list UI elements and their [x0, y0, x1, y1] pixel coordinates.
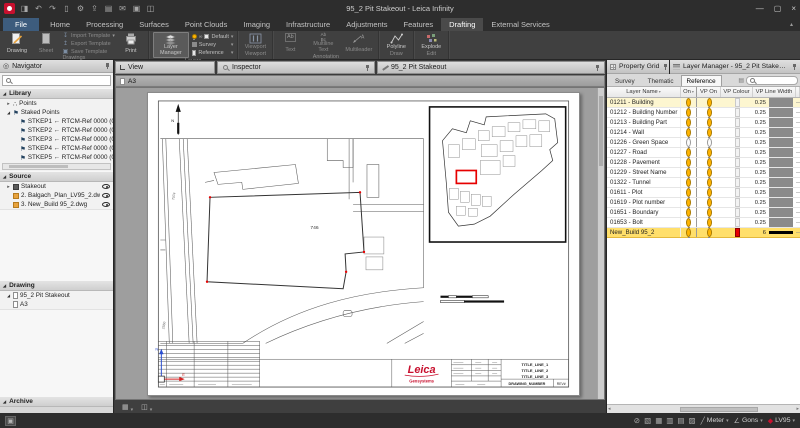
- vp-colour-swatch[interactable]: [735, 228, 740, 237]
- layer-on-cell[interactable]: [681, 128, 697, 137]
- layer-row[interactable]: 01322 - Tunnel0.25—: [607, 178, 800, 188]
- layer-vp-on-cell[interactable]: [697, 108, 721, 117]
- title-bar: ◨↶↷▯⚙⇪▤✉▣◫ 95_2 Pit Stakeout - Leica Inf…: [0, 0, 800, 17]
- layer-row[interactable]: 01651 - Boundary0.25—: [607, 208, 800, 218]
- multileader-button[interactable]: A Multileader: [343, 32, 374, 54]
- bulb-vp-on-icon[interactable]: [707, 218, 712, 227]
- section-expand-icon[interactable]: [3, 173, 6, 180]
- export-template-button[interactable]: ↥ Export Template: [62, 40, 115, 47]
- staked-point-label: STKEP5 ← RTCM-Ref 0000 (07/10: [28, 154, 113, 161]
- layer-vp-on-cell[interactable]: [697, 198, 721, 207]
- north-arrow-symbol: N: [171, 104, 181, 135]
- staked-point-label: STKEP3 ← RTCM-Ref 0000 (07/10: [28, 136, 113, 143]
- layer-vp-line-width-cell[interactable]: 0.25: [753, 98, 796, 107]
- vp-colour-swatch[interactable]: [735, 198, 740, 207]
- vp-colour-swatch[interactable]: [735, 208, 740, 217]
- scale-bar: [440, 296, 504, 303]
- cutoff-cell: —: [796, 148, 800, 157]
- ribbon-group-draw: Polyline Draw: [379, 31, 414, 59]
- redo-icon[interactable]: ↷: [46, 2, 59, 15]
- layer-vp-colour-cell[interactable]: [721, 108, 753, 117]
- layer-vp-on-cell[interactable]: [697, 138, 721, 147]
- dropdown-caret-icon[interactable]: [231, 50, 234, 56]
- visibility-eye-icon[interactable]: [102, 193, 110, 198]
- layer-vp-line-width-cell[interactable]: 0.25: [753, 198, 796, 207]
- vp-line-width-value: 0.25: [753, 118, 766, 127]
- export-template-icon: ↥: [62, 40, 69, 47]
- cutoff-cell: —: [796, 118, 800, 127]
- layer-on-cell[interactable]: [681, 218, 697, 227]
- close-button[interactable]: ×: [791, 4, 796, 13]
- navigator-title: Navigator: [12, 63, 42, 70]
- line-width-preview: [769, 158, 793, 167]
- explode-button[interactable]: Explode: [418, 32, 444, 51]
- navigator-header[interactable]: ◎ Navigator: [0, 60, 113, 73]
- layer-row[interactable]: 01227 - Road0.25—: [607, 148, 800, 158]
- minimize-button[interactable]: —: [756, 4, 764, 13]
- layer-vp-colour-cell[interactable]: [721, 98, 753, 107]
- layer-vp-colour-cell[interactable]: [721, 128, 753, 137]
- main-area: ◎ Navigator Library Points Staked Points: [0, 60, 800, 413]
- property-grid-header[interactable]: Property Grid: [607, 60, 669, 74]
- image-toggle-icon[interactable]: ▧: [644, 416, 651, 425]
- leica-app-icon[interactable]: [4, 3, 15, 14]
- visibility-eye-icon[interactable]: [102, 184, 110, 189]
- bulb-on-icon[interactable]: [686, 138, 691, 147]
- layer-vp-colour-cell[interactable]: [721, 158, 753, 167]
- canvas-vscrollbar[interactable]: [597, 88, 604, 399]
- scroll-right-arrow[interactable]: ▸: [796, 406, 799, 412]
- tab-document[interactable]: 95_2 Pit Stakeout: [377, 61, 605, 74]
- ribbon-group-edit: Explode Edit: [414, 31, 449, 59]
- expander-icon[interactable]: [6, 183, 11, 190]
- bulb-on-icon[interactable]: [686, 178, 691, 187]
- cutoff-cell: —: [796, 158, 800, 167]
- layer-manager-tabs: Survey Thematic Reference ▤: [607, 74, 800, 87]
- vp-colour-swatch[interactable]: [735, 188, 740, 197]
- vp-colour-swatch[interactable]: [735, 158, 740, 167]
- layer-vp-on-cell[interactable]: [697, 128, 721, 137]
- layer-bulb-icon: [192, 34, 197, 39]
- hatch-toggle-icon[interactable]: ▥: [666, 416, 673, 425]
- bulb-vp-on-icon[interactable]: [707, 158, 712, 167]
- layer-manager-header[interactable]: Layer Manager - 95_2 Pit Stakeout - A3: [670, 60, 800, 74]
- layer-vp-colour-cell[interactable]: [721, 198, 753, 207]
- bulb-vp-on-icon[interactable]: [707, 228, 712, 237]
- expander-icon[interactable]: [6, 292, 11, 299]
- staked-point-item[interactable]: STKEP5 ← RTCM-Ref 0000 (07/10: [0, 153, 113, 162]
- layer-vp-on-cell[interactable]: [697, 148, 721, 157]
- line-width-preview: [769, 138, 793, 147]
- section-source[interactable]: Source: [0, 171, 113, 182]
- vp-line-width-value: 0.25: [753, 198, 766, 207]
- column-vp-on[interactable]: VP On: [697, 87, 721, 97]
- ribbon-tab-point-clouds[interactable]: Point Clouds: [177, 18, 236, 32]
- vp-colour-swatch[interactable]: [735, 108, 740, 117]
- layer-row[interactable]: 01226 - Green Space0.25—: [607, 138, 800, 148]
- layer-manager-button[interactable]: Layer Manager: [153, 32, 189, 58]
- layer-vp-line-width-cell[interactable]: 0.25: [753, 168, 796, 177]
- layer-vp-colour-cell[interactable]: [721, 148, 753, 157]
- layer-row[interactable]: 01619 - Plot number0.25—: [607, 198, 800, 208]
- print-icon[interactable]: ▣: [130, 2, 143, 15]
- navigator-hscrollbar[interactable]: [2, 163, 111, 170]
- line-width-preview: [769, 188, 793, 197]
- ribbon-tab-processing[interactable]: Processing: [78, 18, 131, 32]
- layer-vp-colour-cell[interactable]: [721, 118, 753, 127]
- scrollbar-thumb[interactable]: [680, 407, 757, 412]
- ribbon-tab-drafting[interactable]: Drafting: [441, 18, 483, 32]
- svg-text:A: A: [361, 35, 365, 41]
- vp-colour-swatch[interactable]: [735, 128, 740, 137]
- flag-icon: [20, 118, 26, 126]
- layer-vp-line-width-cell[interactable]: 0.25: [753, 218, 796, 227]
- sheet-page-icon: [120, 78, 125, 85]
- layer-vp-colour-cell[interactable]: [721, 168, 753, 177]
- bulb-vp-on-icon[interactable]: [707, 108, 712, 117]
- layer-vp-on-cell[interactable]: [697, 98, 721, 107]
- layer-vp-line-width-cell[interactable]: 0.25: [753, 148, 796, 157]
- source-item-label: 2. Balgach_Plan_LV95_2.dwg: [21, 192, 100, 199]
- library-item-points[interactable]: Points: [0, 99, 113, 108]
- tab-document-label: 95_2 Pit Stakeout: [391, 64, 446, 71]
- column-cutoff: [796, 87, 800, 97]
- sheet-view-icon[interactable]: ▦: [122, 403, 129, 411]
- save-template-label: Save Template: [71, 49, 107, 55]
- cutoff-cell: —: [796, 168, 800, 177]
- layer-on-cell[interactable]: [681, 118, 697, 127]
- pin-icon[interactable]: [662, 63, 668, 70]
- bulb-vp-on-icon[interactable]: [707, 198, 712, 207]
- layer-vp-line-width-cell[interactable]: 6: [753, 228, 796, 237]
- leica-logo-subtext: Geosystems: [409, 379, 434, 384]
- ribbon-tab-infrastructure[interactable]: Infrastructure: [278, 18, 338, 32]
- pin-icon[interactable]: [594, 64, 600, 71]
- staked-point-label: STKEP1 ← RTCM-Ref 0000 (07/10: [28, 118, 113, 125]
- layer-on-cell[interactable]: [681, 208, 697, 217]
- layer-vp-colour-cell[interactable]: [721, 218, 753, 227]
- pin-icon[interactable]: [104, 63, 110, 70]
- line-width-preview: [769, 231, 793, 234]
- column-vp-colour[interactable]: VP Colour: [721, 87, 753, 97]
- section-expand-icon[interactable]: [3, 398, 6, 405]
- staked-point-item[interactable]: STKEP2 ← RTCM-Ref 0000 (07/10: [0, 126, 113, 135]
- layer-on-cell[interactable]: [681, 98, 697, 107]
- layer-vp-line-width-cell[interactable]: 0.25: [753, 208, 796, 217]
- ribbon-tab-file[interactable]: File: [3, 18, 39, 32]
- layer-vp-colour-cell[interactable]: [721, 178, 753, 187]
- section-library-label: Library: [9, 90, 31, 97]
- tab-reference[interactable]: Reference: [681, 75, 722, 86]
- sheet-button[interactable]: Sheet: [33, 32, 59, 55]
- viewport-icon: [249, 33, 262, 44]
- layer-on-cell[interactable]: [681, 158, 697, 167]
- layer-vp-line-width-cell[interactable]: 0.25: [753, 108, 796, 117]
- viewport-button[interactable]: Viewport: [242, 32, 268, 51]
- column-on[interactable]: On: [681, 87, 697, 97]
- layer-on-cell[interactable]: [681, 148, 697, 157]
- layer-name-cell: 01226 - Green Space: [607, 138, 681, 147]
- scrollbar-thumb[interactable]: [9, 165, 68, 168]
- vp-colour-swatch[interactable]: [735, 138, 740, 147]
- layer-on-cell[interactable]: [681, 138, 697, 147]
- layer-vp-line-width-cell[interactable]: 0.25: [753, 178, 796, 187]
- vp-colour-swatch[interactable]: [735, 178, 740, 187]
- bulb-on-icon[interactable]: [686, 198, 691, 207]
- layer-name-cell: 01619 - Plot number: [607, 198, 681, 207]
- title-line-2: TITLE_LINE_2: [522, 368, 549, 373]
- reference-layer-row[interactable]: Reference: [192, 49, 234, 56]
- vp-colour-swatch[interactable]: [735, 98, 740, 107]
- bulb-vp-on-icon[interactable]: [707, 128, 712, 137]
- bulb-vp-on-icon[interactable]: [707, 178, 712, 187]
- layer-row[interactable]: 01653 - Bolt0.25—: [607, 218, 800, 228]
- layer-name-cell: 01651 - Boundary: [607, 208, 681, 217]
- ribbon-tab-surfaces[interactable]: Surfaces: [131, 18, 177, 32]
- pin-icon[interactable]: [364, 64, 370, 71]
- layer-vp-colour-cell[interactable]: [721, 188, 753, 197]
- road-number-label: 7074: [171, 192, 176, 200]
- section-library[interactable]: Library: [0, 88, 113, 99]
- a3-sheet[interactable]: N: [147, 92, 580, 396]
- crs-selector[interactable]: ◆ LV95: [768, 417, 795, 425]
- layer-vp-colour-cell[interactable]: [721, 228, 753, 237]
- vp-colour-swatch[interactable]: [735, 118, 740, 127]
- ribbon-tab-adjustments[interactable]: Adjustments: [338, 18, 395, 32]
- text-button[interactable]: Ab Text: [277, 32, 303, 54]
- undo-icon[interactable]: ↶: [32, 2, 45, 15]
- mail-icon[interactable]: ✉: [116, 2, 129, 15]
- print-button[interactable]: Print: [118, 32, 144, 55]
- bulb-vp-on-icon[interactable]: [707, 208, 712, 217]
- import-icon[interactable]: ◨: [18, 2, 31, 15]
- bulb-on-icon[interactable]: [686, 208, 691, 217]
- layer-row[interactable]: New_Build 95_26—: [607, 228, 800, 238]
- layer-search-input[interactable]: [746, 76, 798, 85]
- export-icon[interactable]: ⇪: [88, 2, 101, 15]
- ribbon-tab-external-services[interactable]: External Services: [483, 18, 557, 32]
- sheet-icon: [40, 33, 52, 45]
- layer-row[interactable]: 01611 - Plot0.25—: [607, 188, 800, 198]
- status-right-cluster: ⊘▧▦▥▤▨ ╱ Meter ∠ Gons ◆ LV95: [634, 416, 795, 425]
- layer-row[interactable]: 01229 - Street Name0.25—: [607, 168, 800, 178]
- bulb-vp-on-icon[interactable]: [707, 168, 712, 177]
- section-archive[interactable]: Archive: [0, 396, 113, 407]
- library-item-staked-points[interactable]: Staked Points: [0, 108, 113, 117]
- bulb-on-icon[interactable]: [686, 118, 691, 127]
- bulb-vp-on-icon[interactable]: [707, 118, 712, 127]
- bulb-on-icon[interactable]: [686, 128, 691, 137]
- vp-colour-swatch[interactable]: [735, 168, 740, 177]
- layer-vp-colour-cell[interactable]: [721, 208, 753, 217]
- layer-on-cell[interactable]: [681, 168, 697, 177]
- source-item[interactable]: 3. New_Build 95_2.dwg: [0, 200, 113, 209]
- default-layer-label: Default: [211, 34, 228, 40]
- layer-row[interactable]: 01212 - Building Number0.25—: [607, 108, 800, 118]
- save-template-icon: ▣: [62, 48, 69, 55]
- layer-vp-line-width-cell[interactable]: 0.25: [753, 158, 796, 167]
- angle-unit-selector[interactable]: ∠ Gons: [734, 417, 763, 425]
- window-icon[interactable]: ◫: [144, 2, 157, 15]
- bulb-on-icon[interactable]: [686, 108, 691, 117]
- bulb-on-icon[interactable]: [686, 168, 691, 177]
- bulb-on-icon[interactable]: [686, 188, 691, 197]
- staked-point-item[interactable]: STKEP1 ← RTCM-Ref 0000 (07/10: [0, 117, 113, 126]
- stakeout-icon: [13, 184, 19, 190]
- source-item[interactable]: 2. Balgach_Plan_LV95_2.dwg: [0, 191, 113, 200]
- filter-funnel-icon[interactable]: [659, 89, 661, 95]
- layer-on-cell[interactable]: [681, 178, 697, 187]
- column-layer-name[interactable]: Layer Name: [607, 87, 681, 97]
- column-vp-line-width[interactable]: VP Line Width: [753, 87, 796, 97]
- scroll-left-arrow[interactable]: ◂: [608, 406, 611, 412]
- layer-vp-line-width-cell[interactable]: 0.25: [753, 188, 796, 197]
- drawing-item-root[interactable]: 95_2 Pit Stakeout: [0, 291, 113, 300]
- maximize-button[interactable]: ▢: [774, 4, 782, 13]
- dropdown-caret-icon[interactable]: [231, 42, 234, 48]
- layer-vp-on-cell[interactable]: [697, 218, 721, 227]
- save-template-button[interactable]: ▣ Save Template: [62, 48, 115, 55]
- layout-view-icon[interactable]: ◫: [141, 403, 148, 411]
- ribbon-collapse-icon[interactable]: [790, 21, 793, 28]
- default-checkbox[interactable]: [204, 34, 209, 39]
- sheet-file-icon: [13, 301, 18, 308]
- ribbon-tab-features[interactable]: Features: [396, 18, 442, 32]
- drawing-icon: [11, 33, 23, 45]
- distance-unit-selector[interactable]: ╱ Meter: [701, 417, 729, 425]
- drawing-item-sheet[interactable]: A3: [0, 300, 113, 309]
- layer-vp-on-cell[interactable]: [697, 178, 721, 187]
- table-toggle-icon[interactable]: ▤: [677, 416, 684, 425]
- sheet-tab-a3[interactable]: A3: [115, 75, 605, 87]
- group-label-draw: Draw: [383, 51, 409, 59]
- ribbon: Drawing Sheet ↧ Import Template ↥ Export…: [0, 31, 800, 60]
- filter-icon[interactable]: ▤: [738, 77, 744, 84]
- drawing-button[interactable]: Drawing: [4, 32, 30, 55]
- dropdown-caret-icon[interactable]: [760, 417, 763, 424]
- vp-colour-swatch[interactable]: [735, 148, 740, 157]
- expander-icon[interactable]: [6, 109, 11, 116]
- bulb-vp-on-icon[interactable]: [707, 188, 712, 197]
- section-expand-icon[interactable]: [3, 282, 6, 289]
- source-item[interactable]: Stakeout: [0, 182, 113, 191]
- ribbon-tab-imaging[interactable]: Imaging: [235, 18, 278, 32]
- bulb-on-icon[interactable]: [686, 218, 691, 227]
- axis-indicator: N E: [155, 346, 185, 382]
- site-plan: [160, 139, 423, 344]
- layer-name-cell: 01214 - Wall: [607, 128, 681, 137]
- status-toggle-icons: ⊘▧▦▥▤▨: [634, 416, 696, 425]
- drawing-canvas[interactable]: N: [115, 87, 605, 400]
- layer-row[interactable]: 01211 - Building0.25—: [607, 98, 800, 108]
- staked-point-item[interactable]: STKEP3 ← RTCM-Ref 0000 (07/10: [0, 135, 113, 144]
- section-drawing[interactable]: Drawing: [0, 280, 113, 291]
- vp-line-width-value: 0.25: [753, 218, 766, 227]
- ribbon-group-annotation: Ab Text AbBc Multiline Text A Multileade…: [273, 31, 379, 59]
- layer-manager-label: Layer Manager: [156, 45, 186, 57]
- layer-vp-on-cell[interactable]: [697, 228, 721, 237]
- multiline-text-button[interactable]: AbBc Multiline Text: [306, 32, 340, 54]
- grid-toggle-icon[interactable]: ▦: [655, 416, 662, 425]
- points-label: Points: [19, 100, 37, 107]
- layer-vp-on-cell[interactable]: [697, 188, 721, 197]
- filter-funnel-icon[interactable]: [692, 89, 694, 95]
- dwg-file-icon: [13, 202, 19, 208]
- visibility-eye-icon[interactable]: [102, 202, 110, 207]
- layer-row[interactable]: 01213 - Building Part0.25—: [607, 118, 800, 128]
- import-template-button[interactable]: ↧ Import Template: [62, 32, 115, 39]
- layer-name-cell: 01229 - Street Name: [607, 168, 681, 177]
- layer-vp-line-width-cell[interactable]: 0.25: [753, 138, 796, 147]
- snap-off-icon[interactable]: ⊘: [634, 416, 640, 425]
- report-icon[interactable]: ▤: [102, 2, 115, 15]
- tab-thematic[interactable]: Thematic: [642, 75, 680, 86]
- tab-survey[interactable]: Survey: [609, 75, 641, 86]
- section-source-label: Source: [9, 173, 31, 180]
- expander-icon[interactable]: [6, 100, 11, 107]
- layer-on-cell[interactable]: [681, 108, 697, 117]
- panel-expand-icon[interactable]: ▣: [5, 416, 16, 426]
- layer-row[interactable]: 01228 - Pavement0.25—: [607, 158, 800, 168]
- link-icon: ∞: [199, 34, 203, 40]
- default-layer-row[interactable]: ∞ Default: [192, 33, 234, 40]
- polyline-button[interactable]: Polyline: [383, 32, 409, 51]
- layer-vp-on-cell[interactable]: [697, 118, 721, 127]
- settings-icon[interactable]: ⚙: [74, 2, 87, 15]
- vp-line-width-value: 0.25: [753, 108, 766, 117]
- delete-icon[interactable]: ▯: [60, 2, 73, 15]
- layer-vp-on-cell[interactable]: [697, 168, 721, 177]
- dropdown-caret-icon[interactable]: [112, 33, 115, 39]
- right-panel-hscrollbar[interactable]: ◂ ▸: [607, 404, 800, 413]
- ribbon-tab-home[interactable]: Home: [42, 18, 78, 32]
- bulb-vp-on-icon[interactable]: [707, 98, 712, 107]
- layer-vp-colour-cell[interactable]: [721, 138, 753, 147]
- navigator-search-input[interactable]: [2, 75, 111, 86]
- dropdown-caret-icon[interactable]: [792, 417, 795, 424]
- layer-on-cell[interactable]: [681, 188, 697, 197]
- bulb-vp-on-icon[interactable]: [707, 148, 712, 157]
- building-number-label: 746: [310, 225, 319, 231]
- layer-vp-line-width-cell[interactable]: 0.25: [753, 128, 796, 137]
- section-drawing-label: Drawing: [9, 282, 35, 289]
- vp-line-width-value: 0.25: [753, 98, 766, 107]
- bulb-on-icon[interactable]: [686, 98, 691, 107]
- layer-vp-on-cell[interactable]: [697, 158, 721, 167]
- dropdown-caret-icon[interactable]: [231, 34, 234, 40]
- bulb-on-icon[interactable]: [686, 148, 691, 157]
- tab-view[interactable]: View: [115, 61, 215, 74]
- dropdown-caret-icon[interactable]: [726, 417, 729, 424]
- layer-vp-line-width-cell[interactable]: 0.25: [753, 118, 796, 127]
- staked-point-item[interactable]: STKEP4 ← RTCM-Ref 0000 (07/10: [0, 144, 113, 153]
- layer-on-cell[interactable]: [681, 228, 697, 237]
- vp-colour-swatch[interactable]: [735, 218, 740, 227]
- section-expand-icon[interactable]: [3, 90, 6, 97]
- bulb-on-icon[interactable]: [686, 228, 691, 237]
- layer-vp-on-cell[interactable]: [697, 208, 721, 217]
- line-width-preview: [769, 118, 793, 127]
- survey-layer-row[interactable]: Survey: [192, 41, 234, 48]
- bulb-on-icon[interactable]: [686, 158, 691, 167]
- folder-icon[interactable]: ▨: [688, 416, 695, 425]
- print-icon: [125, 33, 137, 45]
- layer-on-cell[interactable]: [681, 198, 697, 207]
- tab-inspector[interactable]: Inspector: [217, 61, 375, 74]
- bulb-vp-on-icon[interactable]: [707, 138, 712, 147]
- layer-row[interactable]: 01214 - Wall0.25—: [607, 128, 800, 138]
- pin-icon[interactable]: [791, 63, 797, 70]
